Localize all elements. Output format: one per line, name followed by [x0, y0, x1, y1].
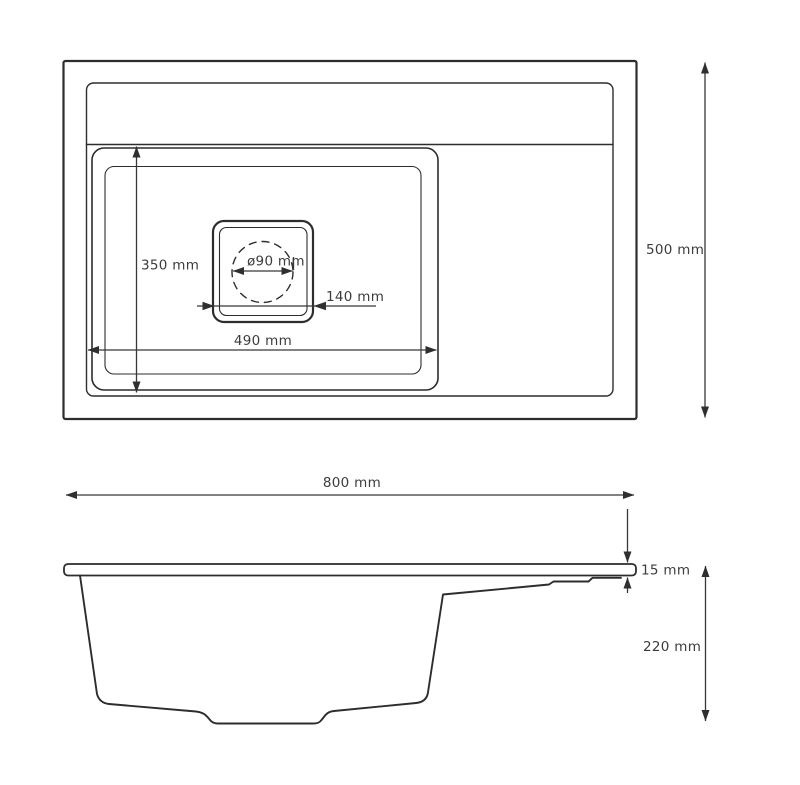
dim-label-350mm: 350 mm [141, 258, 199, 274]
dimension-15mm: 15 mm [628, 509, 691, 593]
top-view: 350 mm ø90 mm 140 mm 490 mm [64, 61, 706, 419]
drawing-svg: 350 mm ø90 mm 140 mm 490 mm [0, 0, 800, 785]
bowl-profile [80, 576, 621, 724]
dim-label-800mm: 800 mm [323, 475, 381, 491]
dim-label-490mm: 490 mm [234, 333, 292, 349]
dimension-220mm: 220 mm [643, 566, 706, 721]
drain-circle-dashed [232, 242, 293, 303]
dim-label-500mm: 500 mm [646, 242, 704, 258]
dim-label-90mm: ø90 mm [247, 254, 305, 270]
dim-label-140mm: 140 mm [326, 289, 384, 305]
dim-arrow-140mm-right [314, 302, 327, 311]
dimension-140mm: 140 mm [197, 289, 384, 310]
rim-profile [64, 564, 636, 576]
dimension-490mm: 490 mm [88, 333, 437, 350]
dim-label-15mm: 15 mm [641, 563, 690, 579]
top-view-inner-rim [87, 83, 614, 396]
side-view: 800 mm 15 mm 220 mm [64, 475, 706, 724]
top-view-outer-rim [64, 61, 637, 419]
dimension-90mm: ø90 mm [233, 254, 305, 272]
dimension-350mm: 350 mm [137, 147, 200, 393]
dimension-500mm: 500 mm [646, 63, 705, 418]
dim-label-220mm: 220 mm [643, 639, 701, 655]
sink-technical-drawing: 350 mm ø90 mm 140 mm 490 mm [0, 0, 800, 785]
dimension-800mm: 800 mm [66, 475, 634, 495]
